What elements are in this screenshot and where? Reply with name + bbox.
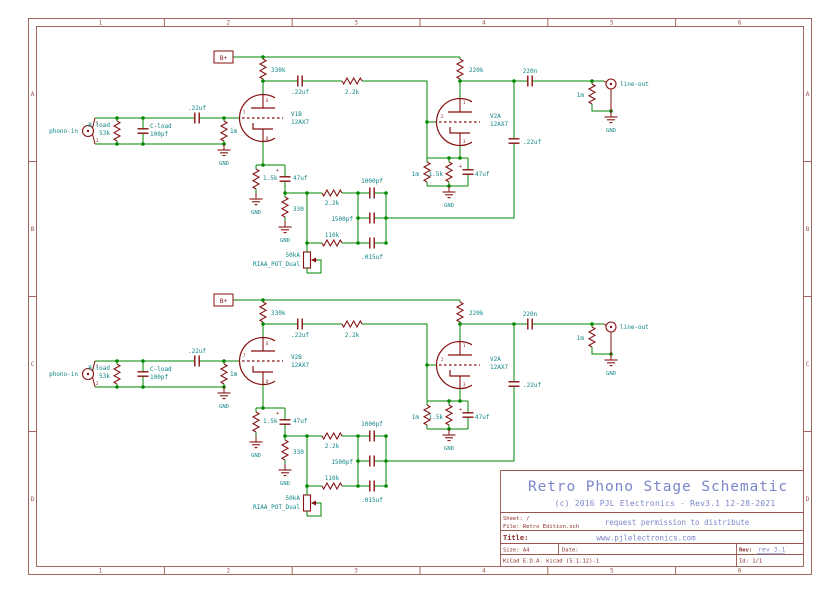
value-label: + (276, 411, 279, 417)
value-label: 330k (271, 310, 286, 317)
value-label: R-load (88, 365, 110, 372)
page: { "sheet": { "cols": ["1","2","3","4","5… (0, 0, 840, 593)
value-label: 1000pf (361, 178, 383, 185)
value-label: 110k (325, 232, 340, 239)
schematic-sheet: Retro Phono Stage Schematic (c) 2016 PJL… (0, 0, 840, 593)
value-label: RIAA_POT_Dual (253, 504, 300, 511)
value-label: 1.5k (263, 418, 278, 425)
date-label: Date: (562, 548, 579, 554)
value-label: 2.2k (325, 443, 340, 450)
value-label: 1m (412, 414, 420, 421)
frame-col-label: 2 (226, 568, 230, 575)
frame-col-label: 5 (610, 568, 614, 575)
value-label: 47uf (475, 414, 490, 421)
file-label: File: Retro Edition.sch (503, 524, 579, 530)
value-label: 100pf (150, 131, 168, 138)
frame-col-label: 4 (482, 20, 486, 27)
value-label: GND (444, 446, 454, 452)
value-label: 50kA (286, 252, 301, 259)
sheet-id-label: Id: 1/1 (739, 559, 762, 565)
value-label: 1.5k (429, 414, 444, 421)
value-label: 1m (412, 171, 420, 178)
value-label: .22uf (188, 105, 206, 112)
frame-col-label: 6 (738, 20, 742, 27)
value-label: 47uf (293, 418, 308, 425)
value-label: GND (606, 371, 616, 377)
distribution-notice: request permission to distribute (605, 518, 750, 527)
value-label: 110k (325, 475, 340, 482)
value-label: 1m (230, 128, 238, 135)
value-label: 2.2k (325, 200, 340, 207)
value-label: 47uf (293, 175, 308, 182)
value-label: GND (251, 210, 261, 216)
sheet-subtitle: (c) 2016 PJL Electronics - Rev3.1 12-28-… (555, 499, 776, 508)
value-label: 12AX7 (291, 362, 309, 369)
size-label: Size: A4 (503, 548, 530, 554)
tube-reference: V2A (490, 113, 501, 120)
value-label: phono-in (49, 128, 78, 135)
rev-label: Rev: (739, 548, 752, 554)
frame-row-label: A (31, 91, 35, 98)
value-label: + (459, 164, 462, 170)
value-label: 1.5k (263, 175, 278, 182)
value-label: C-load (150, 123, 172, 130)
frame-col-label: 1 (99, 20, 103, 27)
value-label: GND (280, 238, 290, 244)
frame-col-label: 4 (482, 568, 486, 575)
value-label: 220k (469, 67, 484, 74)
frame-row-label: D (806, 496, 810, 503)
frame-col-label: 2 (226, 20, 230, 27)
value-label: phono-in (49, 371, 78, 378)
frame-row-label: C (806, 361, 810, 368)
value-label: 1500pf (331, 459, 353, 466)
frame-col-label: 6 (738, 568, 742, 575)
frame-row-label: C (31, 361, 35, 368)
value-label: GND (219, 161, 229, 167)
value-label: R-load (88, 122, 110, 129)
frame-col-label: 1 (99, 568, 103, 575)
value-label: .22uf (523, 382, 541, 389)
value-label: 1m (577, 92, 585, 99)
sheet-title: Retro Phono Stage Schematic (528, 479, 788, 495)
sheet-path-label: Sheet: / (503, 516, 530, 522)
value-label: .22uf (188, 348, 206, 355)
frame-row-label: D (31, 496, 35, 503)
value-label: 1000pf (361, 421, 383, 428)
frame-row-label: A (806, 91, 810, 98)
frame-row-label: B (31, 226, 35, 233)
frame-row-label: B (806, 226, 810, 233)
value-label: 1.5k (429, 171, 444, 178)
value-label: 330k (271, 67, 286, 74)
rev-value: rev 3.1 (758, 546, 785, 554)
value-label: GND (444, 203, 454, 209)
value-label: line-out (620, 324, 649, 331)
website-link: www.pjlelectronics.com (596, 534, 696, 543)
value-label: 220k (469, 310, 484, 317)
value-label: 12AX7 (291, 119, 309, 126)
value-label: .22uf (291, 89, 309, 96)
value-label: 220n (523, 68, 538, 75)
value-label: 100pf (150, 374, 168, 381)
value-label: + (459, 407, 462, 413)
value-label: GND (280, 481, 290, 487)
value-label: 47uf (475, 171, 490, 178)
value-label: 2.2k (345, 332, 360, 339)
tube-reference: V2A (490, 356, 501, 363)
value-label: GND (251, 453, 261, 459)
value-label: GND (606, 128, 616, 134)
value-label: 1500pf (331, 216, 353, 223)
tube-reference: V1B (291, 111, 302, 118)
value-label: B+ (220, 55, 228, 62)
value-label: + (276, 168, 279, 174)
value-label: 330 (293, 206, 304, 213)
value-label: 1m (577, 335, 585, 342)
value-label: GND (219, 404, 229, 410)
value-label: 53k (99, 130, 110, 137)
frame-col-label: 5 (610, 20, 614, 27)
value-label: line-out (620, 81, 649, 88)
tube-reference: V2B (291, 354, 302, 361)
value-label: 220n (523, 311, 538, 318)
title-field-label: Title: (503, 534, 528, 542)
tool-label: KiCad E.D.A. kicad (5.1.12)-1 (503, 559, 599, 565)
value-label: C-load (150, 366, 172, 373)
value-label: 50kA (286, 495, 301, 502)
value-label: B+ (220, 298, 228, 305)
frame-col-label: 3 (354, 568, 358, 575)
schematic-canvas: Retro Phono Stage Schematic (c) 2016 PJL… (0, 0, 840, 593)
value-label: .015uf (361, 254, 383, 261)
value-label: 53k (99, 373, 110, 380)
value-label: 12AX7 (490, 121, 508, 128)
value-label: RIAA_POT_Dual (253, 261, 300, 268)
value-label: .015uf (361, 497, 383, 504)
value-label: 330 (293, 449, 304, 456)
value-label: 2.2k (345, 89, 360, 96)
value-label: 1m (230, 371, 238, 378)
value-label: 12AX7 (490, 364, 508, 371)
value-label: .22uf (291, 332, 309, 339)
frame-col-label: 3 (354, 20, 358, 27)
value-label: .22uf (523, 139, 541, 146)
